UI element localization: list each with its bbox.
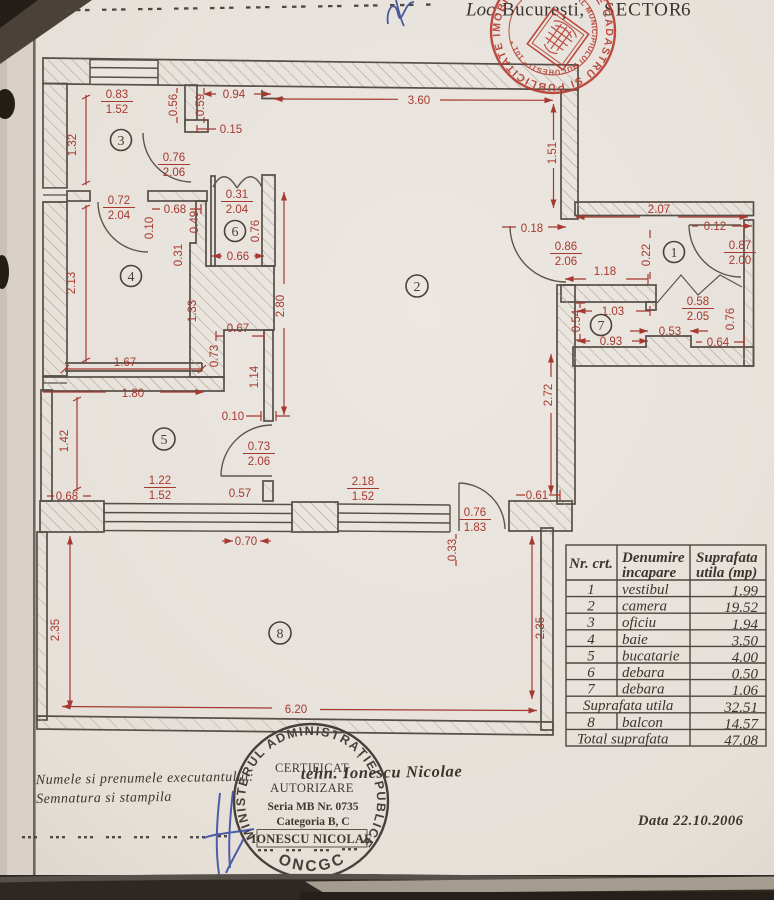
svg-text:0.76: 0.76 <box>163 152 185 164</box>
svg-text:0.61: 0.61 <box>526 490 548 502</box>
svg-text:0.15: 0.15 <box>220 124 242 136</box>
svg-text:4: 4 <box>587 632 595 648</box>
svg-text:14.57: 14.57 <box>724 716 759 732</box>
svg-text:47.08: 47.08 <box>724 733 758 749</box>
svg-text:1.83: 1.83 <box>464 522 486 534</box>
svg-text:1.80: 1.80 <box>122 388 144 400</box>
svg-text:Categoria B, C: Categoria B, C <box>276 816 349 828</box>
svg-text:1.22: 1.22 <box>149 475 171 487</box>
svg-text:0.76: 0.76 <box>725 308 737 330</box>
svg-text:SECTOR: SECTOR <box>604 0 683 21</box>
svg-text:7: 7 <box>598 319 605 334</box>
svg-text:1.32: 1.32 <box>67 134 79 156</box>
svg-text:1.14: 1.14 <box>249 365 261 388</box>
svg-text:Nr. crt.: Nr. crt. <box>568 556 613 572</box>
svg-text:Suprafata utila: Suprafata utila <box>583 698 673 714</box>
svg-text:2.80: 2.80 <box>275 295 287 317</box>
svg-text:0.64: 0.64 <box>707 337 730 349</box>
svg-text:Denumire: Denumire <box>621 550 685 566</box>
svg-text:3.50: 3.50 <box>731 633 759 649</box>
svg-text:5: 5 <box>587 648 595 664</box>
svg-text:0.66: 0.66 <box>227 251 249 263</box>
svg-text:2.06: 2.06 <box>163 167 185 179</box>
svg-text:1.06: 1.06 <box>732 683 759 699</box>
svg-text:0.53: 0.53 <box>659 326 681 338</box>
svg-text:0.58: 0.58 <box>687 296 709 308</box>
svg-text:Seria MB Nr. 0735: Seria MB Nr. 0735 <box>268 801 359 813</box>
svg-text:0.94: 0.94 <box>223 89 246 101</box>
svg-text:0.18: 0.18 <box>521 223 543 235</box>
svg-text:oficiu: oficiu <box>622 615 656 631</box>
svg-text:CERTIFICAT: CERTIFICAT <box>275 761 349 775</box>
svg-text:0.76: 0.76 <box>464 507 486 519</box>
svg-text:0.68: 0.68 <box>56 491 78 503</box>
svg-text:1: 1 <box>587 582 595 598</box>
svg-text:6: 6 <box>587 665 595 681</box>
svg-text:incapare: incapare <box>622 565 677 581</box>
svg-text:IONESCU NICOLAE: IONESCU NICOLAE <box>251 832 372 846</box>
svg-text:0.31: 0.31 <box>226 189 248 201</box>
svg-text:2.00: 2.00 <box>729 255 751 267</box>
svg-text:1.99: 1.99 <box>732 584 759 600</box>
svg-text:6: 6 <box>681 0 691 21</box>
svg-text:AUTORIZARE: AUTORIZARE <box>270 781 354 795</box>
svg-text:0.86: 0.86 <box>555 241 577 253</box>
svg-text:3: 3 <box>586 615 595 631</box>
svg-text:2.35: 2.35 <box>535 617 547 639</box>
svg-text:1.67: 1.67 <box>114 357 136 369</box>
svg-text:2.06: 2.06 <box>555 256 577 268</box>
svg-text:Total suprafata: Total suprafata <box>577 731 669 747</box>
svg-text:1.52: 1.52 <box>106 104 128 116</box>
svg-text:19.52: 19.52 <box>724 600 758 616</box>
svg-text:2.18: 2.18 <box>352 476 374 488</box>
svg-text:0.49: 0.49 <box>189 211 201 233</box>
svg-text:Suprafata: Suprafata <box>696 550 758 566</box>
svg-text:baie: baie <box>622 632 648 648</box>
svg-text:1.52: 1.52 <box>352 491 374 503</box>
svg-text:0.10: 0.10 <box>222 411 244 423</box>
svg-text:3.60: 3.60 <box>408 95 430 107</box>
svg-text:2.06: 2.06 <box>248 456 270 468</box>
svg-text:0.33: 0.33 <box>447 539 459 561</box>
svg-text:0.93: 0.93 <box>600 336 622 348</box>
svg-text:Data 22.10.2006: Data 22.10.2006 <box>637 813 744 829</box>
svg-text:2.72: 2.72 <box>543 384 555 406</box>
svg-text:6.20: 6.20 <box>285 704 307 716</box>
svg-text:4.00: 4.00 <box>732 650 759 666</box>
svg-text:1: 1 <box>671 246 678 261</box>
svg-text:bucatarie: bucatarie <box>622 648 680 664</box>
svg-text:vestibul: vestibul <box>622 582 669 598</box>
svg-text:2.04: 2.04 <box>108 210 131 222</box>
svg-text:0.67: 0.67 <box>227 323 249 335</box>
svg-text:2.07: 2.07 <box>648 204 670 216</box>
svg-text:0.31: 0.31 <box>173 244 185 266</box>
svg-text:0.73: 0.73 <box>248 441 270 453</box>
svg-text:0.22: 0.22 <box>641 244 653 266</box>
svg-text:0.76: 0.76 <box>250 220 262 242</box>
svg-text:0.10: 0.10 <box>144 217 156 239</box>
svg-text:2.13: 2.13 <box>66 272 78 294</box>
svg-text:1.18: 1.18 <box>594 266 616 278</box>
svg-text:4: 4 <box>128 270 135 285</box>
svg-text:utila (mp): utila (mp) <box>696 565 757 581</box>
svg-text:6: 6 <box>232 225 239 240</box>
svg-text:2: 2 <box>587 599 595 615</box>
svg-text:2.05: 2.05 <box>687 311 709 323</box>
svg-text:5: 5 <box>161 433 168 448</box>
svg-text:1.42: 1.42 <box>59 430 71 452</box>
svg-text:1.94: 1.94 <box>732 617 759 633</box>
svg-text:debara: debara <box>622 682 665 698</box>
svg-text:0.54: 0.54 <box>571 309 583 332</box>
svg-text:0.73: 0.73 <box>209 345 221 367</box>
svg-text:Semnatura si stampila: Semnatura si stampila <box>36 790 172 807</box>
svg-text:2.04: 2.04 <box>226 204 249 216</box>
svg-text:0.70: 0.70 <box>235 536 257 548</box>
svg-text:camera: camera <box>622 599 667 615</box>
svg-text:balcon: balcon <box>622 715 663 731</box>
svg-text:0.83: 0.83 <box>106 89 128 101</box>
svg-text:2: 2 <box>414 280 421 295</box>
svg-text:8: 8 <box>587 715 595 731</box>
svg-text:2.35: 2.35 <box>50 619 62 641</box>
svg-text:1.33: 1.33 <box>187 300 199 322</box>
svg-text:8: 8 <box>277 627 284 642</box>
svg-text:3: 3 <box>118 134 125 149</box>
svg-text:0.68: 0.68 <box>164 204 186 216</box>
svg-text:1.52: 1.52 <box>149 490 171 502</box>
svg-text:0.50: 0.50 <box>732 667 759 683</box>
svg-text:0.59: 0.59 <box>195 94 207 116</box>
svg-text:0.56: 0.56 <box>168 94 180 116</box>
svg-text:debara: debara <box>622 665 665 681</box>
svg-text:0.87: 0.87 <box>729 240 751 252</box>
svg-text:0.12: 0.12 <box>704 221 726 233</box>
svg-text:32.51: 32.51 <box>723 700 758 716</box>
svg-text:0.72: 0.72 <box>108 195 130 207</box>
svg-text:1.51: 1.51 <box>547 142 559 164</box>
svg-text:0.57: 0.57 <box>229 488 251 500</box>
